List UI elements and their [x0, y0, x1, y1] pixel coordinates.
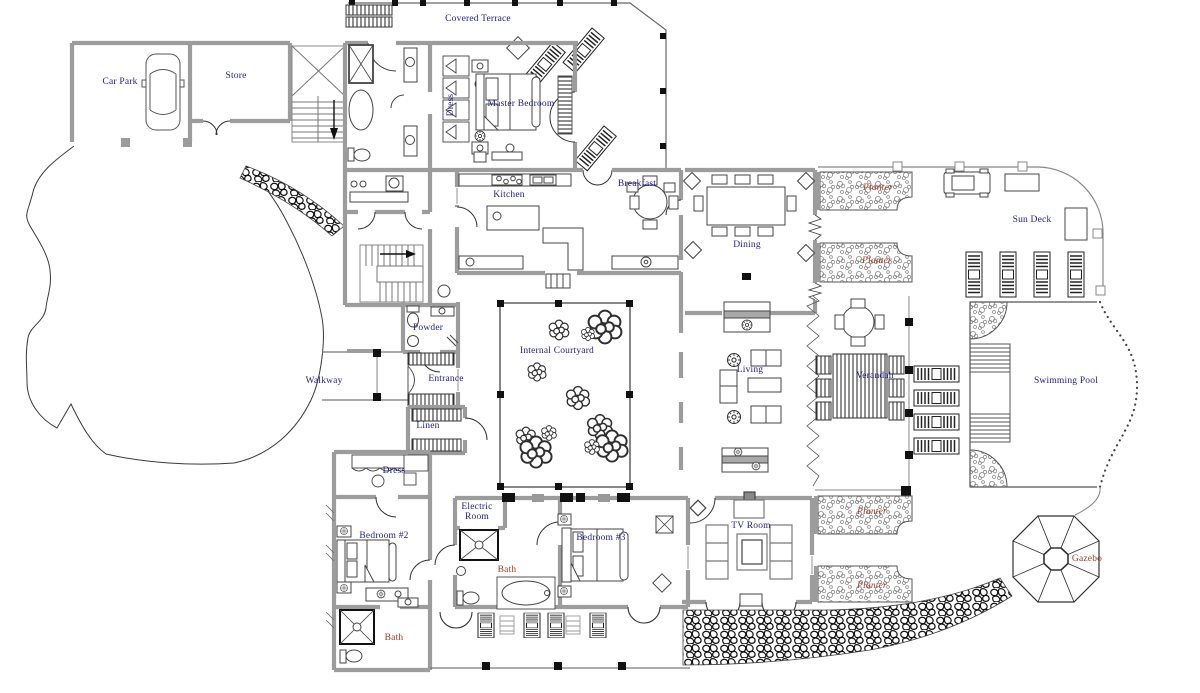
powder-fixtures [407, 306, 458, 347]
rug [558, 76, 572, 134]
internal-courtyard [497, 300, 633, 490]
kitchen-breakfast [457, 170, 681, 313]
entrance-block [403, 302, 487, 453]
floor-plan-canvas: Car ParkStoreCovered TerraceMaster Bedro… [0, 0, 1200, 693]
tv-room [682, 492, 812, 619]
planters-se [816, 496, 912, 602]
bed3 [558, 514, 628, 597]
dining-room [684, 170, 821, 313]
swimming-pool [970, 302, 1137, 515]
dress-wardrobes [443, 56, 469, 142]
gazebo [1013, 516, 1099, 602]
verandah-round-table [835, 299, 884, 346]
master-bath-fixtures [348, 45, 417, 161]
garage-block [72, 43, 290, 147]
car [142, 54, 184, 130]
dining-table [694, 175, 796, 236]
golf-cart [944, 169, 990, 197]
stone-path-north [240, 166, 344, 236]
walkway [322, 349, 408, 401]
living-room [681, 302, 781, 472]
main-stairs [292, 46, 345, 142]
breakfast-table [627, 176, 678, 229]
tv-furniture [690, 492, 792, 579]
master-suite [345, 43, 681, 170]
dress2-interior [352, 455, 428, 487]
bath-fixtures [457, 530, 556, 609]
bed2 [337, 526, 396, 593]
courtyard-trees [516, 311, 627, 468]
pantry-stairs-block [345, 170, 458, 305]
bedroom2-suite [326, 452, 430, 670]
planters-ne [818, 172, 912, 282]
service-stairs [360, 245, 423, 302]
bedroom3 [558, 498, 688, 607]
ac-unit [346, 5, 392, 15]
ac-unit [346, 17, 392, 27]
verandah-dining-set [816, 354, 904, 420]
floor-plan-drawing [0, 0, 1200, 693]
south-window-wall [455, 493, 688, 502]
verandah [807, 296, 959, 496]
